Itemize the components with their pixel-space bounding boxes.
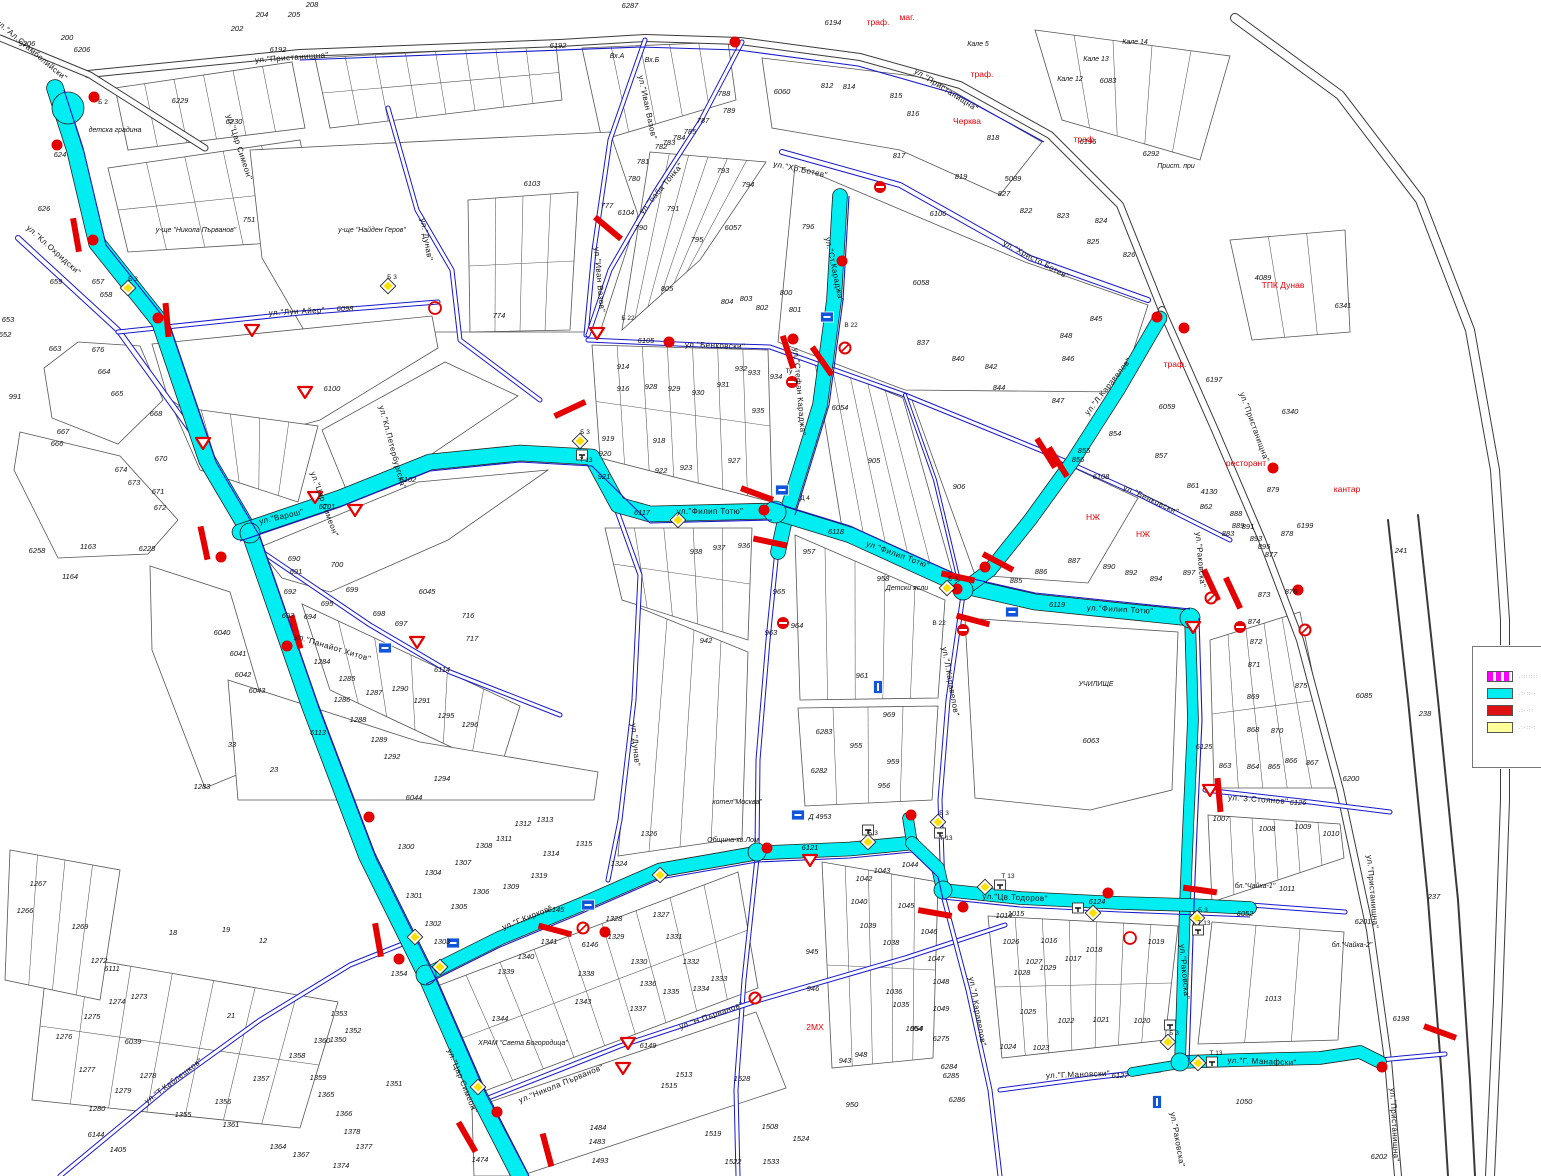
parcel-number-label: 21 <box>226 1011 235 1020</box>
closure-bar <box>1423 1023 1457 1040</box>
signpost-icon <box>906 810 917 821</box>
parcel-number-label: 241 <box>1394 546 1408 555</box>
parcel-number-label: 1035 <box>893 1000 911 1009</box>
sign-code-label: Б 22 <box>621 315 635 322</box>
parcel-number-label: 6054 <box>832 403 849 412</box>
parcel-number-label: 876 <box>1285 587 1298 596</box>
parcel-number-label: 751 <box>243 215 256 224</box>
parcel-number-label: 1355 <box>175 1110 193 1119</box>
signpost-icon <box>1377 1062 1388 1073</box>
parcel-number-label: 1047 <box>928 954 946 963</box>
parcel-number-label: 1315 <box>576 839 594 848</box>
street-number-label: 6117 <box>634 508 651 517</box>
parcel-number-label: 692 <box>284 587 297 596</box>
parcel-number-label: 1334 <box>693 984 710 993</box>
parcel-number-label: 1043 <box>874 866 892 875</box>
parcel-number-label: 6041 <box>230 649 247 658</box>
parcel-number-label: 663 <box>49 344 62 353</box>
street-number-label: 6127 <box>1112 1071 1130 1080</box>
closure-bar <box>198 526 211 561</box>
parcel-number-label: 652 <box>0 330 12 339</box>
map-viewport[interactable]: ул."Ал.Стамболийски"ул."Пристанищна"ул."… <box>0 0 1541 1176</box>
street-number-label: 6126 <box>1290 798 1308 807</box>
parcel-number-label: 1280 <box>89 1104 107 1113</box>
parcel-number-label: 916 <box>617 384 630 393</box>
parcel-number-label: 1474 <box>472 1155 489 1164</box>
parcel-number-label: 1328 <box>606 914 624 923</box>
parcel-number-label: 1039 <box>860 921 878 930</box>
parcel-number-label: 1164 <box>62 572 78 581</box>
parcel-number-label: 33 <box>228 740 237 749</box>
street-number-label: 6098 <box>337 304 355 313</box>
parcel-number-label: 1028 <box>1014 968 1032 977</box>
parcel-number-label: 780 <box>628 174 641 183</box>
info-sign-glyph <box>1156 1098 1158 1106</box>
poi-red-label: траф. <box>971 69 994 79</box>
signpost-icon <box>1152 312 1163 323</box>
parcel-number-label: 238 <box>1418 709 1432 718</box>
parcel-number-label: 777 <box>601 201 614 210</box>
parcel-number-label: 716 <box>462 611 475 620</box>
parcel-number-label: 6206 <box>74 45 92 54</box>
parcel-number-label: 1046 <box>921 927 939 936</box>
sign-code-label: Т 13 <box>1209 1050 1222 1057</box>
parcel-number-label: 1267 <box>30 879 48 888</box>
street-number-label: 6124 <box>1089 897 1106 906</box>
legend-item-route-cyan: .:·::·· <box>1487 688 1541 699</box>
poi-red-label: 2МХ <box>806 1022 824 1032</box>
parcel-number-label: 6144 <box>88 1130 105 1139</box>
parcel-number-label: 6103 <box>524 179 542 188</box>
closure-bar <box>553 399 586 419</box>
parcel-number-label: 1295 <box>438 711 456 720</box>
parcel-number-label: 6229 <box>172 96 190 105</box>
parcel-number-label: 1326 <box>641 829 659 838</box>
signpost-icon <box>216 552 227 563</box>
poi-label: у-ще "Найден Геров" <box>337 226 406 234</box>
parcel-number-label: 1274 <box>109 997 126 1006</box>
parcel-number-label: 890 <box>1103 562 1116 571</box>
parcel-number-label: 883 <box>1222 529 1235 538</box>
parcel-number-label: 1524 <box>793 1134 810 1143</box>
parcel-block <box>250 132 638 332</box>
parcel-number-label: 1356 <box>215 1097 233 1106</box>
parcel-number-label: 1338 <box>578 969 596 978</box>
poi-red-label: кантар <box>1334 484 1361 494</box>
poi-label: хотел"Москва" <box>711 799 762 806</box>
parcel-number-label: 1275 <box>84 1012 102 1021</box>
parcel-number-label: 1330 <box>631 957 649 966</box>
parcel-number-label: 695 <box>321 599 334 608</box>
parcel-number-label: 6052 <box>1237 909 1255 918</box>
parcel-number-label: 6341 <box>1335 301 1352 310</box>
parcel-number-label: 6287 <box>622 1 640 10</box>
legend-swatch-route-yellow <box>1487 722 1513 733</box>
parcel-number-label: 1343 <box>575 997 593 1006</box>
parcel-number-label: 819 <box>955 172 968 181</box>
signpost-icon <box>492 1107 503 1118</box>
parcel-number-label: 666 <box>51 439 64 448</box>
parcel-number-label: 1036 <box>886 987 904 996</box>
info-sign-glyph <box>795 814 802 816</box>
parcel-number-label: 866 <box>1285 756 1298 765</box>
info-sign-glyph <box>877 683 879 691</box>
poi-label: Прист. при <box>1157 163 1195 170</box>
parcel-number-label: 667 <box>57 427 70 436</box>
closure-bar <box>372 923 384 958</box>
parcel-number-label: 791 <box>667 204 680 213</box>
legend-swatch-route-red <box>1487 705 1513 716</box>
closure-bar <box>1223 576 1243 609</box>
parcel-number-label: 872 <box>1250 637 1263 646</box>
sign-code-label: В 22 <box>932 620 946 627</box>
parcel-number-label: 671 <box>152 487 165 496</box>
parcel-number-label: 717 <box>466 634 479 643</box>
parcel-number-label: 1352 <box>345 1026 363 1035</box>
parcel-number-label: 1286 <box>334 695 352 704</box>
sign-code-label: Б 3 <box>387 274 397 281</box>
parcel-number-label: 697 <box>395 619 408 628</box>
street-name-label: ул."Филип Тотю" <box>677 507 744 516</box>
parcel-number-label: 668 <box>150 409 163 418</box>
parcel-number-label: 1045 <box>898 901 916 910</box>
parcel-number-label: 1029 <box>1040 963 1058 972</box>
parcel-number-label: 6285 <box>943 1071 961 1080</box>
signpost-icon <box>980 562 991 573</box>
street-name-label: ул."Пристанищна" <box>1388 1088 1401 1162</box>
parcel-number-label: 1269 <box>72 922 90 931</box>
map-legend: .... .:::::::.:·::··.:··::.:·::·: <box>1472 646 1541 768</box>
poi-label: бл."Чайка-2" <box>1332 941 1373 949</box>
parcel-number-label: 1048 <box>933 977 951 986</box>
parcel-number-label: 959 <box>887 757 900 766</box>
parcel-number-label: 932 <box>735 364 748 373</box>
parcel-number-label: 658 <box>100 290 113 299</box>
parcel-number-label: 921 <box>598 472 611 481</box>
parcel-number-label: 1319 <box>531 871 549 880</box>
parcel-number-label: 936 <box>738 541 751 550</box>
sign-code-label: Б 3 <box>1169 1030 1179 1037</box>
parcel-number-label: 774 <box>493 311 506 320</box>
parcel-number-label: 1272 <box>91 956 109 965</box>
parcel-number-label: 1020 <box>1134 1016 1152 1025</box>
sign-code-label: Т 13 <box>939 835 952 842</box>
info-sign-glyph <box>450 942 457 944</box>
parcel-number-label: 1008 <box>1259 824 1277 833</box>
parcel-number-label: 665 <box>111 389 124 398</box>
parcel-number-label: 897 <box>1183 568 1196 577</box>
parcel-number-label: 237 <box>1427 892 1441 901</box>
parcel-number-label: 1340 <box>518 952 536 961</box>
parcel-number-label: 6201 <box>1355 917 1372 926</box>
parcel-number-label: 1305 <box>451 902 469 911</box>
parcel-number-label: 929 <box>668 384 681 393</box>
parcel-number-label: 837 <box>917 338 930 347</box>
parcel-number-label: 18 <box>169 928 178 937</box>
parcel-number-label: 1050 <box>1236 1097 1254 1106</box>
street-number-label: 6108 <box>1093 472 1111 481</box>
parcel-number-label: 1300 <box>398 842 416 851</box>
parcel-number-label: 1024 <box>1000 1042 1017 1051</box>
parcel-number-label: 1358 <box>289 1051 307 1060</box>
parcel-number-label: 1278 <box>140 1071 158 1080</box>
parcel-number-label: 699 <box>346 585 359 594</box>
parcel-number-label: 1017 <box>1065 954 1083 963</box>
parcel-number-label: 6043 <box>249 686 267 695</box>
parcel-number-label: 870 <box>1271 726 1284 735</box>
parcel-number-label: 1042 <box>856 874 874 883</box>
parcel-number-label: 1332 <box>683 957 701 966</box>
parcel-number-label: 1306 <box>473 887 491 896</box>
parcel-number-label: 4130 <box>1201 487 1219 496</box>
parcel-number-label: 848 <box>1060 331 1073 340</box>
parcel-number-label: 1327 <box>653 910 671 919</box>
no-entry-bar <box>876 186 884 188</box>
parcel-number-label: 822 <box>1020 206 1033 215</box>
parcel-number-label: 1522 <box>725 1157 743 1166</box>
parcel-number-label: 1329 <box>608 932 626 941</box>
parcel-number-label: 1311 <box>496 834 512 843</box>
info-sign-glyph <box>585 904 592 906</box>
parcel-number-label: 854 <box>1109 429 1122 438</box>
poi-label: Д 4953 <box>808 814 832 821</box>
signpost-icon <box>88 235 99 246</box>
parcel-number-label: 879 <box>1267 485 1280 494</box>
parcel-number-label: 6040 <box>214 628 232 637</box>
parcel-number-label: 958 <box>877 574 890 583</box>
yield-sign-icon <box>410 637 424 648</box>
parcel-number-label: 6194 <box>825 18 842 27</box>
parcel-number-label: 1296 <box>462 720 480 729</box>
sign-code-label: Т 13 <box>1197 920 1210 927</box>
parcel-number-label: 6104 <box>618 208 635 217</box>
parcel-number-label: 653 <box>2 315 15 324</box>
parcel-number-label: 694 <box>304 612 317 621</box>
parcel-number-label: 693 <box>282 611 295 620</box>
parcel-number-label: 1331 <box>666 932 683 941</box>
parcel-number-label: 800 <box>780 288 793 297</box>
parcel-number-label: 964 <box>791 621 804 630</box>
parcel-number-label: 204 <box>255 10 269 19</box>
parcel-number-label: 887 <box>1068 556 1081 565</box>
parcel-number-label: 781 <box>637 157 650 166</box>
parcel-number-label: 1015 <box>1008 909 1026 918</box>
parcel-number-label: 1377 <box>356 1142 374 1151</box>
poi-label: Вх.А <box>610 53 625 60</box>
parcel-number-label: 1273 <box>131 992 149 1001</box>
parcel-number-label: 1022 <box>1058 1016 1076 1025</box>
parcel-number-label: 6199 <box>1297 521 1315 530</box>
parcel-number-label: 1515 <box>661 1081 679 1090</box>
parcel-number-label: 991 <box>9 392 22 401</box>
parcel-number-label: 1508 <box>762 1122 780 1131</box>
poi-label: Кале 13 <box>1083 56 1109 63</box>
parcel-block <box>5 850 120 1000</box>
signpost-icon <box>730 37 741 48</box>
street-name-label: ул."Пристанищна" <box>1237 391 1271 463</box>
info-sign-glyph <box>1009 611 1016 613</box>
legend-item-route-red: .:··:: <box>1487 705 1541 716</box>
parcel-number-label: 6039 <box>125 1037 143 1046</box>
parcel-number-label: 6258 <box>29 546 47 555</box>
parcel-number-label: 874 <box>1248 617 1261 626</box>
parcel-number-label: 871 <box>1248 660 1261 669</box>
parcel-number-label: 804 <box>721 297 734 306</box>
parcel-number-label: 857 <box>1155 451 1168 460</box>
signpost-icon <box>788 334 799 345</box>
parcel-number-label: 894 <box>1150 574 1163 583</box>
parcel-block <box>315 45 562 128</box>
parcel-number-label: 6058 <box>913 278 931 287</box>
parcel-number-label: 969 <box>883 710 896 719</box>
parcel-number-label: 825 <box>1087 237 1100 246</box>
parcel-number-label: 805 <box>661 284 674 293</box>
parcel-number-label: 6283 <box>816 727 834 736</box>
info-sign-glyph <box>779 489 786 491</box>
parcel-number-label: 6340 <box>1282 407 1300 416</box>
no-entry-bar <box>1236 626 1244 628</box>
street-number-label: 6100 <box>324 384 342 393</box>
parcel-number-label: 945 <box>806 947 819 956</box>
parcel-number-label: 954 <box>911 1024 924 1033</box>
parcel-number-label: 6044 <box>406 793 423 802</box>
parcel-number-label: 6202 <box>1371 1152 1389 1161</box>
parcel-number-label: 1291 <box>414 696 431 705</box>
street-name-label: ул."Л.Каравелов" <box>940 646 961 717</box>
parcel-number-label: 802 <box>756 303 769 312</box>
parcel-number-label: 862 <box>1200 502 1213 511</box>
parcel-number-label: 785 <box>684 127 697 136</box>
parcel-number-label: 782 <box>655 142 668 151</box>
parcel-number-label: 1308 <box>476 841 494 850</box>
street-number-label: 6102 <box>400 475 418 484</box>
map-canvas[interactable]: ул."Ал.Стамболийски"ул."Пристанищна"ул."… <box>0 0 1541 1176</box>
parcel-number-label: 787 <box>697 116 710 125</box>
parcel-number-label: 914 <box>617 362 630 371</box>
signpost-icon <box>664 337 675 348</box>
parcel-number-label: 1301 <box>406 891 423 900</box>
parcel-number-label: 1276 <box>56 1032 74 1041</box>
sign-code-label: Ту <box>786 368 794 375</box>
parcel-number-label: 624 <box>54 150 67 159</box>
parcel-number-label: 827 <box>998 189 1011 198</box>
parcel-number-label: 1009 <box>1295 822 1313 831</box>
parcel-number-label: 934 <box>770 372 783 381</box>
info-sign-glyph <box>382 647 389 649</box>
parcel-number-label: 6106 <box>930 209 948 218</box>
poi-red-label: траф. <box>867 17 890 27</box>
parcel-number-label: 1533 <box>763 1157 781 1166</box>
street-number-label: 6146 <box>582 940 600 949</box>
street-name-label: ул."З.Стоянов" <box>1228 793 1289 806</box>
parcel-number-label: 1049 <box>933 1004 951 1013</box>
parcel-number-label: 878 <box>1281 529 1294 538</box>
parcel-number-label: 6063 <box>1083 736 1101 745</box>
signpost-icon <box>52 140 63 151</box>
parcel-number-label: 1359 <box>310 1073 328 1082</box>
parcel-number-label: 923 <box>680 463 693 472</box>
legend-swatch-route-cyan <box>1487 688 1513 699</box>
parcel-block <box>468 192 578 332</box>
parcel-number-label: 700 <box>331 560 344 569</box>
poi-label: УЧИЛИЩЕ <box>1077 681 1113 688</box>
street-number-label: 6192 <box>550 41 568 50</box>
parcel-number-label: 691 <box>290 567 303 576</box>
sign-code-label: Б 3 <box>580 429 590 436</box>
street-number-label: 6125 <box>1196 742 1214 751</box>
parcel-number-label: 1378 <box>344 1127 362 1136</box>
parcel-number-label: 801 <box>789 305 802 314</box>
parcel-number-label: 877 <box>1265 550 1278 559</box>
parcel-number-label: 938 <box>690 547 703 556</box>
parcel-number-label: 892 <box>1125 568 1138 577</box>
poi-red-label: НЖ <box>1136 529 1150 539</box>
parcel-number-label: 6042 <box>235 670 253 679</box>
parcel-number-label: 1360 <box>314 1036 332 1045</box>
parcel-number-label: 23 <box>269 765 279 774</box>
poi-label: Кале 5 <box>967 41 989 48</box>
parcel-number-label: 963 <box>765 628 778 637</box>
parcel-number-label: 1040 <box>851 897 869 906</box>
yield-sign-icon <box>590 328 604 339</box>
parcel-number-label: 1307 <box>455 858 473 867</box>
parcel-number-label: 1304 <box>425 868 442 877</box>
parcel-number-label: 1290 <box>392 684 410 693</box>
signpost-icon <box>364 812 375 823</box>
parcel-number-label: 864 <box>1247 762 1260 771</box>
poi-red-label: Черква <box>953 116 981 126</box>
parcel-number-label: 1351 <box>386 1079 403 1088</box>
parcel-number-label: 1287 <box>366 688 384 697</box>
street-number-label: 6119 <box>1049 600 1066 609</box>
parcel-number-label: 906 <box>953 482 966 491</box>
poi-label: Община-кв.Лом <box>707 836 759 844</box>
signpost-icon <box>153 313 164 324</box>
street-name-label: ул."Ал.Стамболийски" <box>0 18 69 83</box>
parcel-number-label: 861 <box>1187 481 1200 490</box>
parcel-number-label: 1354 <box>391 969 408 978</box>
signpost-icon <box>282 641 293 652</box>
parcel-number-label: 789 <box>723 106 736 115</box>
parcel-number-label: 1044 <box>902 860 919 869</box>
parcel-number-label: 826 <box>1123 250 1136 259</box>
parcel-number-label: 1007 <box>1213 814 1231 823</box>
parcel-block <box>1198 922 1344 1044</box>
parcel-number-label: 818 <box>987 133 1000 142</box>
parcel-number-label: 863 <box>1219 761 1232 770</box>
parcel-number-label: 1025 <box>1020 1007 1038 1016</box>
parcel-number-label: 664 <box>98 367 111 376</box>
street-name-label: ул."Раковска" <box>1168 1111 1186 1167</box>
parcel-number-label: 1285 <box>339 674 357 683</box>
signpost-icon <box>1179 323 1190 334</box>
poi-label: ХРАМ "Света Богородица" <box>477 1039 568 1047</box>
parcel-number-label: 6284 <box>941 1062 958 1071</box>
parcel-number-label: 824 <box>1095 216 1108 225</box>
parcel-number-label: 1284 <box>314 657 331 666</box>
sign-code-label: Д 4 <box>800 495 810 502</box>
info-sign-glyph <box>824 316 831 318</box>
parcel-number-label: 1493 <box>592 1156 610 1165</box>
no-entry-bar <box>779 622 787 624</box>
parcel-number-label: 796 <box>802 222 815 231</box>
parcel-number-label: 1361 <box>223 1120 240 1129</box>
poi-label: Вх.Б <box>645 57 660 64</box>
sign-code-label: В 22 <box>844 322 858 329</box>
highlighted-route <box>757 843 912 853</box>
parcel-number-label: 855 <box>1078 446 1091 455</box>
parcel-number-label: 942 <box>700 636 713 645</box>
